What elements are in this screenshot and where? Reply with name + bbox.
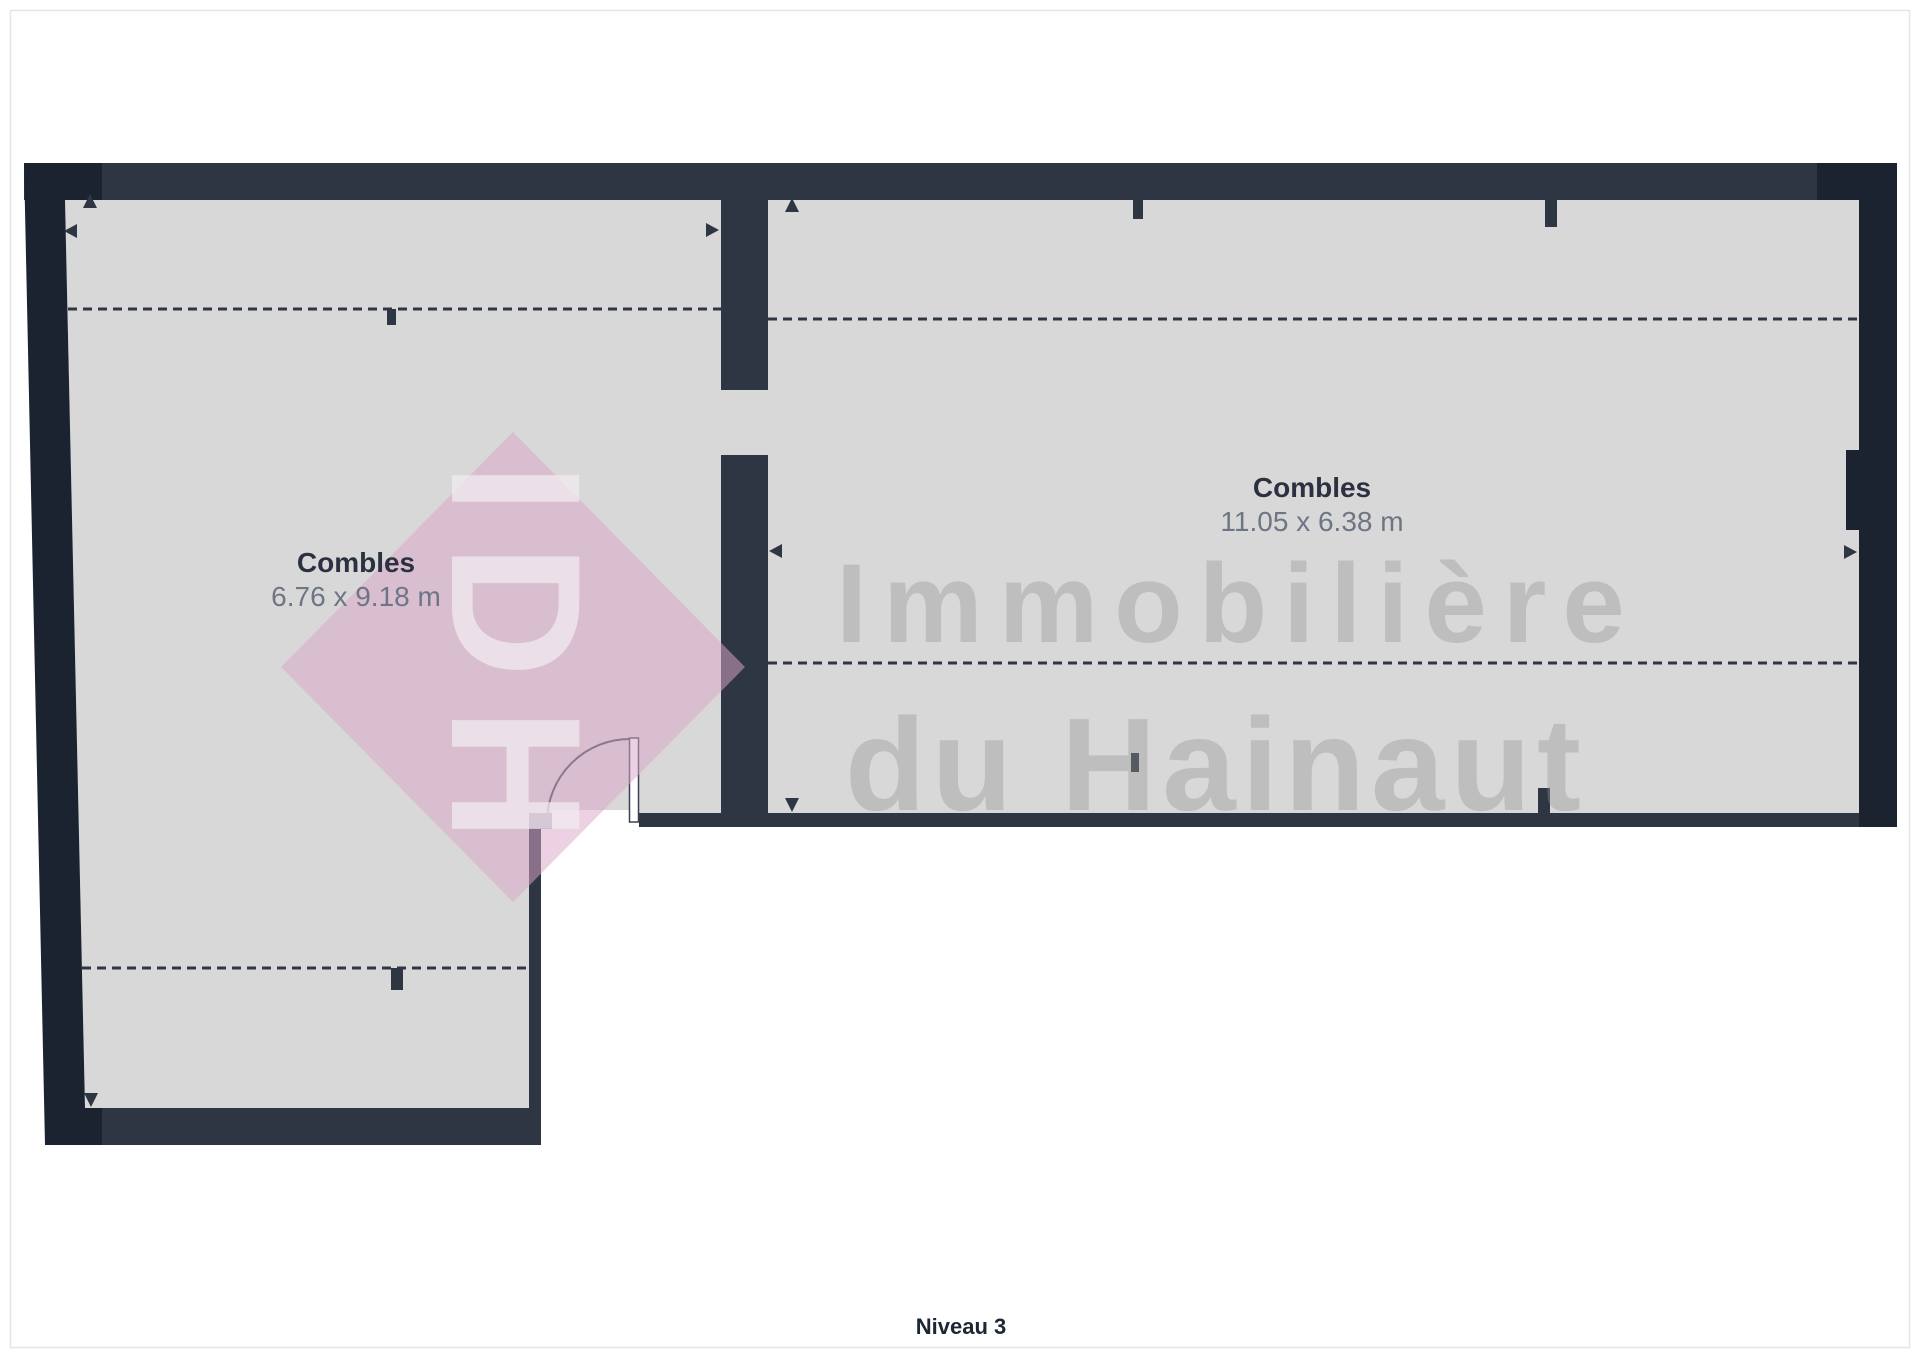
tick-right-top-2 (1545, 200, 1557, 227)
floor-plan-canvas: IDH Immobilière du Hainaut Combles 6.76 … (0, 0, 1920, 1358)
top-wall (24, 163, 1897, 200)
tick-right-top-1 (1133, 200, 1143, 219)
room-label-left-dims: 6.76 x 9.18 m (271, 581, 441, 612)
tick-left-lower (391, 968, 403, 990)
divider-wall-lower (721, 455, 768, 827)
divider-wall-upper (721, 163, 768, 390)
room-label-right-dims: 11.05 x 6.38 m (1220, 506, 1403, 537)
bottom-wall-left-room (45, 1108, 541, 1145)
bottom-left-corner (45, 1108, 102, 1145)
divider-opening-floor (721, 390, 768, 455)
level-label: Niveau 3 (916, 1314, 1007, 1339)
room-label-right-name: Combles (1253, 472, 1371, 503)
watermark-line1: Immobilière (836, 541, 1641, 666)
tick-left-upper (387, 309, 396, 325)
watermark-logo-text: IDH (412, 463, 618, 872)
room-label-left-name: Combles (297, 547, 415, 578)
watermark-line2: du Hainaut (845, 691, 1587, 838)
